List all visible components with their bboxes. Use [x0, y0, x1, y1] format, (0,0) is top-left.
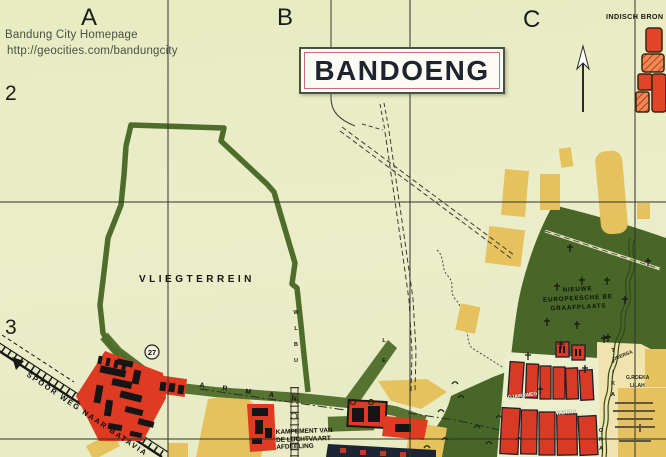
- side-road-letters: LE: [381, 338, 387, 378]
- top-right-building-cluster: [636, 28, 666, 112]
- map-title-inner-border: BANDOENG: [304, 52, 500, 89]
- airfield-label: VLIEGTERREIN: [139, 274, 255, 285]
- river-name-letters-2: ONA: [598, 428, 604, 455]
- map-title: BANDOENG: [314, 55, 489, 87]
- airfield-boundary: [100, 125, 308, 392]
- yellow-area-label-3: LILAH: [630, 383, 645, 389]
- right-yellow-strip: [597, 342, 666, 457]
- airfield-edge-letters: WLBU: [293, 310, 299, 374]
- kampement-label: KAMPEMENT VAN DE LUCHTVAART AFDEELING: [276, 427, 334, 451]
- grid-col-a: A: [81, 4, 97, 32]
- grid-row-2: 2: [5, 82, 17, 106]
- north-arrow-icon: [577, 46, 589, 112]
- marker-27-label: 27: [146, 348, 158, 357]
- red-compound: [76, 351, 187, 441]
- grid-col-c: C: [523, 6, 540, 34]
- grid-row-3: 3: [5, 316, 17, 340]
- corner-label: INDISCH BRON: [606, 12, 664, 21]
- grid-col-b: B: [277, 4, 293, 32]
- map-canvas: A B C 2 3 Bandung City Homepage http://g…: [0, 0, 666, 457]
- map-title-box: BANDOENG: [299, 47, 505, 94]
- site-title: Bandung City Homepage: [5, 29, 138, 41]
- site-url: http://geocities.com/bandungcity: [7, 45, 178, 57]
- yellow-area-label-2: G.ROEKA: [626, 375, 649, 381]
